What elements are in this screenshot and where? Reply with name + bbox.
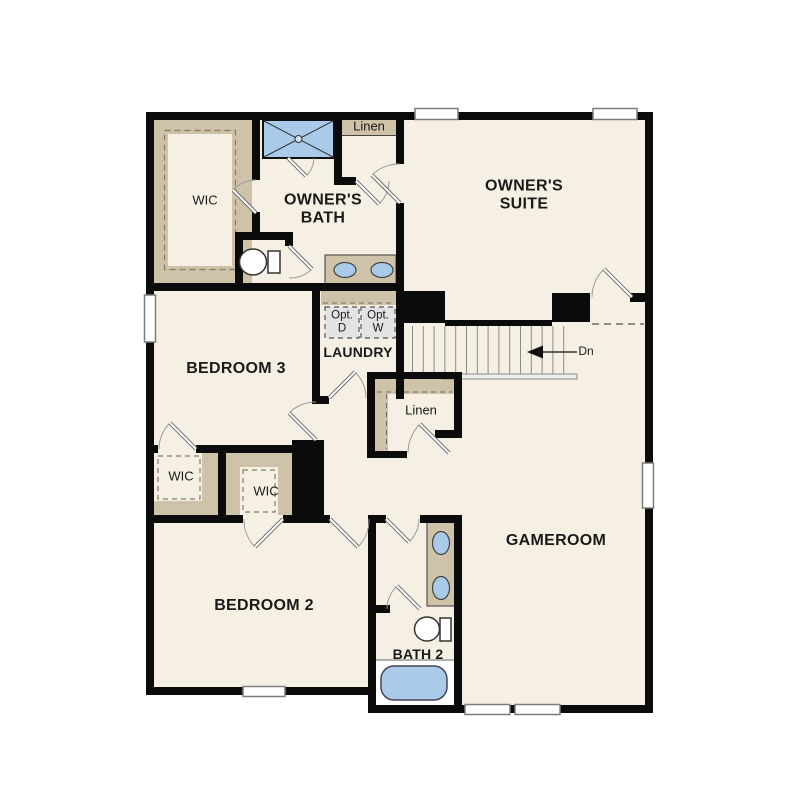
wall-segment [367,372,375,458]
toilet-bowl [415,617,440,641]
wall-segment [146,283,404,291]
wall-segment [367,451,407,458]
wic1-shelf-bottom [154,501,218,515]
stairs-rail [443,374,577,379]
wall-segment [435,430,462,438]
window [515,705,560,715]
sink [433,577,450,600]
wall-segment [285,232,293,246]
owner-wic-inner [168,134,232,266]
sink [371,263,393,278]
shower-drain [295,136,302,143]
window [465,705,510,715]
wic2-shelf-left [226,467,240,515]
wall-segment [398,291,445,323]
owners-bath-vanity [325,255,396,285]
wall-segment [645,112,653,713]
wall-segment [252,112,260,180]
window [643,463,654,508]
shower [263,120,334,158]
wall-segment [146,112,154,695]
wall-segment [454,515,462,713]
wall-segment [454,372,462,437]
window [243,687,285,697]
wall-segment [292,440,324,517]
wall-segment [146,515,243,523]
wall-segment [396,112,404,164]
wall-segment [552,293,590,322]
toilet-tank [268,251,280,273]
linen-upper-shelf [342,120,396,135]
wall-segment [334,120,342,177]
opt-washer-box [361,307,395,338]
wall-segment [376,515,386,523]
wic2-shelf-top [226,453,292,467]
sink [433,532,450,555]
wall-segment [146,445,158,453]
exterior-cutout [146,695,368,713]
wall-segment [334,177,356,185]
bath2-vanity [427,517,455,606]
wall-segment [630,293,645,302]
stairs-treads [412,326,574,374]
wall-segment [283,515,330,523]
wall-segment [445,320,552,326]
wall-segment [196,445,292,453]
toilet-bath2 [415,617,452,641]
window [145,295,156,342]
bath2-tub-area [376,660,454,705]
window [593,109,637,120]
toilet-bowl [240,249,267,275]
wall-segment [235,232,293,240]
wall-segment [312,291,320,402]
floor-plan: OWNER'S SUITE OWNER'S BATH WIC Linen BED… [0,0,810,810]
toilet-owners-bath [240,249,281,275]
window [415,109,458,120]
wall-segment [367,372,462,379]
wall-segment [218,453,226,515]
opt-dryer-box [325,307,359,338]
sink [334,263,356,278]
toilet-tank [440,618,451,641]
floor-plan-canvas [0,0,810,810]
wic2-shelf-right [278,467,292,515]
wall-segment [368,515,376,713]
wall-segment [312,396,329,404]
bathtub [381,666,447,700]
